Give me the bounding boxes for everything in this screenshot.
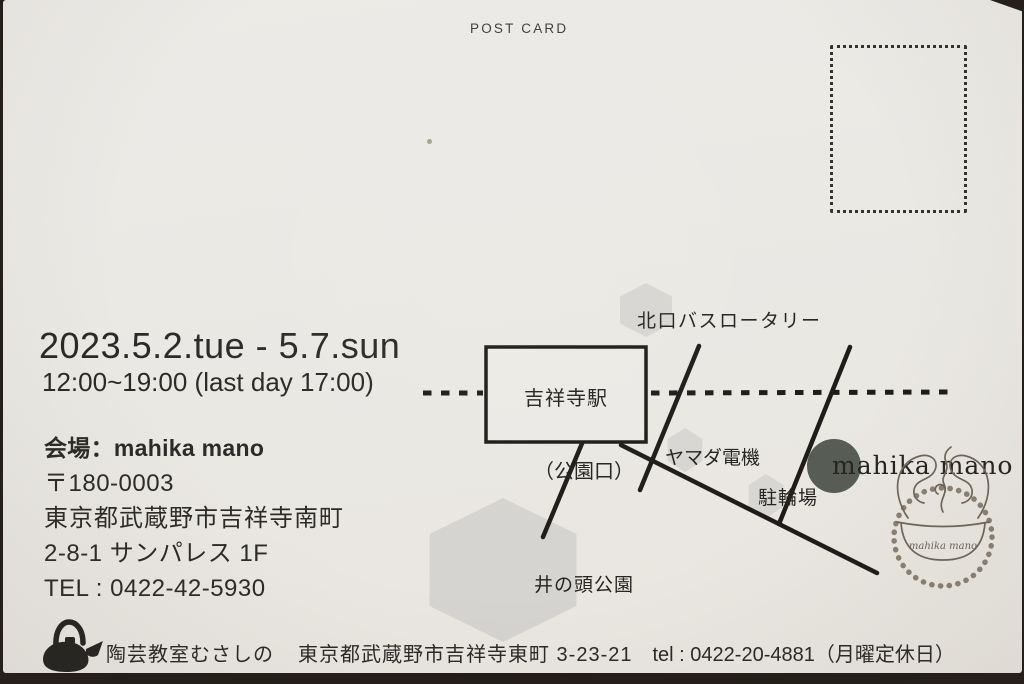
footer-address: 東京都武蔵野市吉祥寺東町 3-23-21 (298, 638, 633, 667)
teapot-icon (0, 0, 1024, 684)
footer-studio-name: 陶芸教室むさしの (106, 638, 274, 667)
footer-info: 陶芸教室むさしの 東京都武蔵野市吉祥寺東町 3-23-21 tel : 0422… (106, 638, 955, 667)
footer-phone: tel : 0422-20-4881（月曜定休日） (653, 638, 955, 667)
